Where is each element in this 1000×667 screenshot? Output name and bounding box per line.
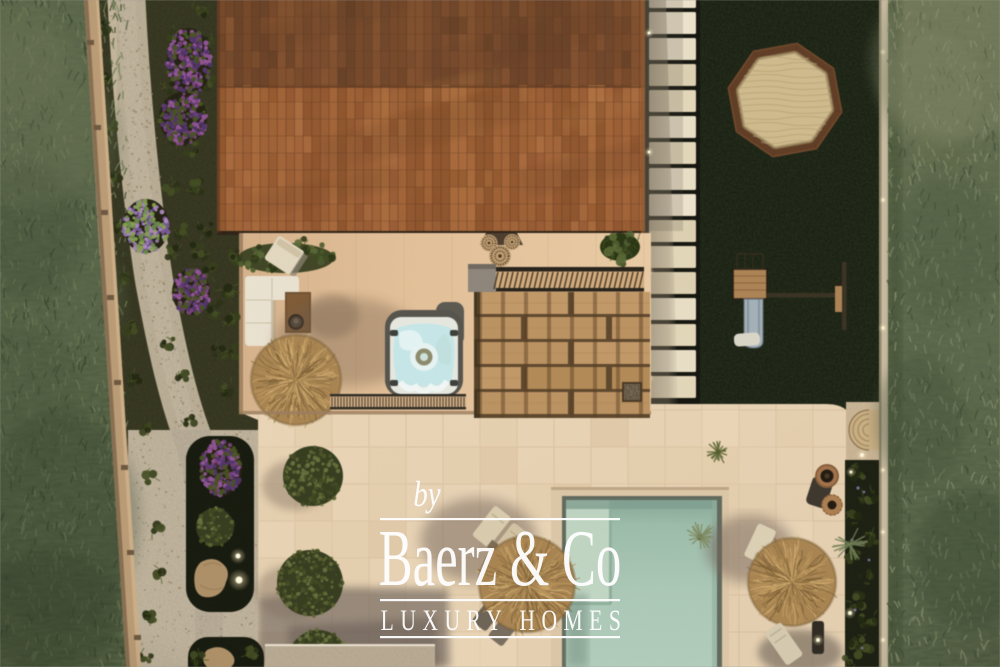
svg-text:Baerz & Co: Baerz & Co [379,515,622,603]
svg-text:by: by [413,475,441,515]
svg-text:LUXURY HOMES: LUXURY HOMES [381,604,628,637]
